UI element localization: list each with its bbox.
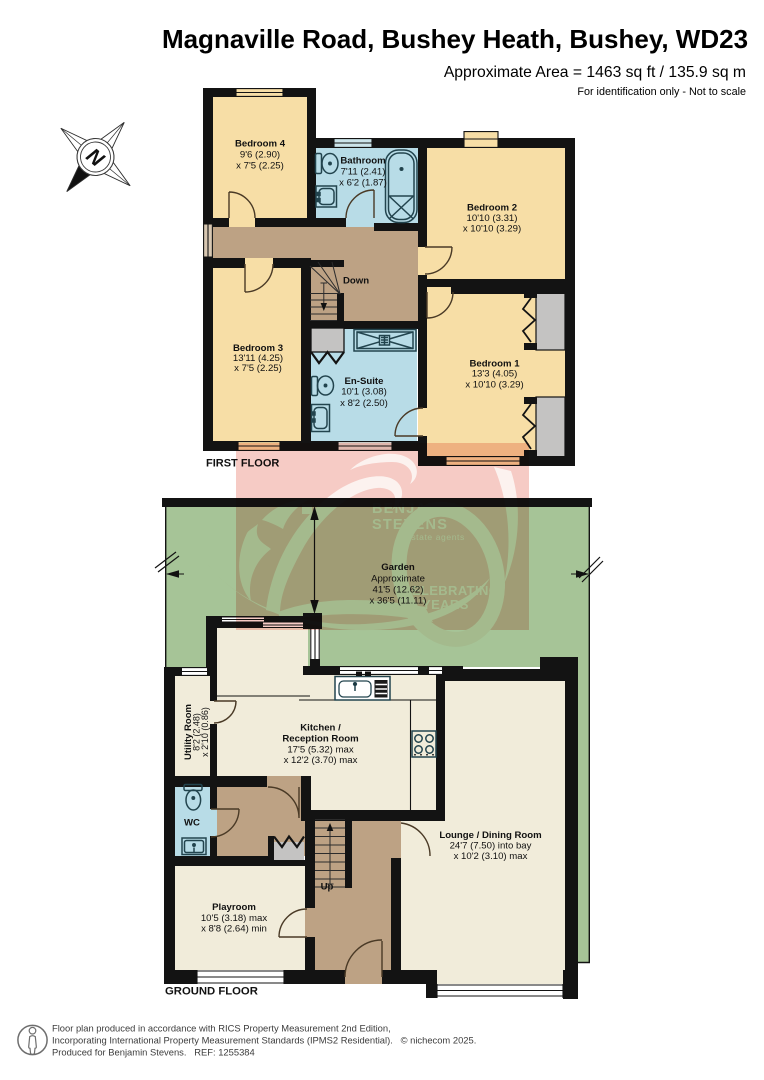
- svg-text:Approximate Area = 1463 sq ft: Approximate Area = 1463 sq ft / 135.9 sq…: [444, 64, 746, 81]
- svg-text:x 12'2 (3.70) max: x 12'2 (3.70) max: [284, 755, 358, 766]
- svg-text:CELEBRATING: CELEBRATING: [402, 583, 499, 598]
- svg-text:Floor plan produced in accorda: Floor plan produced in accordance with R…: [52, 1023, 391, 1034]
- svg-text:En-Suite: En-Suite: [345, 376, 384, 387]
- svg-text:10'10 (3.31): 10'10 (3.31): [467, 213, 518, 224]
- svg-text:x 7'5 (2.25): x 7'5 (2.25): [236, 161, 284, 172]
- svg-text:Reception Room: Reception Room: [282, 734, 358, 745]
- svg-text:x 8'8 (2.64) min: x 8'8 (2.64) min: [201, 924, 267, 935]
- svg-text:17'5 (5.32) max: 17'5 (5.32) max: [287, 744, 354, 755]
- svg-text:Produced for Benjamin Stevens.: Produced for Benjamin Stevens. REF: 1255…: [52, 1047, 255, 1058]
- svg-text:estate agents: estate agents: [406, 532, 465, 542]
- svg-text:x 10'10 (3.29): x 10'10 (3.29): [465, 379, 523, 390]
- svg-text:YEARS: YEARS: [422, 597, 469, 612]
- svg-text:Magnaville Road, Bushey Heath,: Magnaville Road, Bushey Heath, Bushey, W…: [162, 24, 748, 54]
- svg-text:BENJAMIN: BENJAMIN: [372, 501, 457, 517]
- svg-text:GROUND FLOOR: GROUND FLOOR: [165, 986, 258, 998]
- svg-text:Up: Up: [321, 882, 334, 893]
- svg-text:x 7'5 (2.25): x 7'5 (2.25): [234, 363, 282, 374]
- svg-text:WC: WC: [184, 818, 200, 829]
- svg-text:STEVENS: STEVENS: [372, 517, 448, 533]
- svg-text:Bedroom 4: Bedroom 4: [235, 139, 286, 150]
- svg-text:x 10'10 (3.29): x 10'10 (3.29): [463, 224, 521, 235]
- svg-text:For identification only - Not: For identification only - Not to scale: [577, 86, 746, 98]
- svg-text:Incorporating International Pr: Incorporating International Property Mea…: [52, 1035, 476, 1046]
- svg-text:x 6'2 (1.87): x 6'2 (1.87): [339, 178, 387, 189]
- svg-text:Bedroom 2: Bedroom 2: [467, 202, 517, 213]
- svg-text:Lounge / Dining Room: Lounge / Dining Room: [439, 830, 541, 841]
- svg-text:10'5 (3.18) max: 10'5 (3.18) max: [201, 913, 268, 924]
- svg-text:9'6 (2.90): 9'6 (2.90): [240, 150, 280, 161]
- svg-text:10'1 (3.08): 10'1 (3.08): [341, 387, 387, 398]
- svg-text:x 8'2 (2.50): x 8'2 (2.50): [340, 398, 388, 409]
- svg-text:x 2'10 (0.86): x 2'10 (0.86): [200, 707, 210, 757]
- svg-text:Bathroom: Bathroom: [340, 156, 385, 167]
- svg-text:Kitchen /: Kitchen /: [300, 723, 341, 734]
- svg-text:Playroom: Playroom: [212, 902, 256, 913]
- svg-text:7'11 (2.41): 7'11 (2.41): [341, 167, 386, 178]
- svg-text:x 10'2 (3.10) max: x 10'2 (3.10) max: [454, 851, 528, 862]
- svg-text:Down: Down: [343, 276, 369, 287]
- svg-text:13'3 (4.05): 13'3 (4.05): [472, 369, 518, 380]
